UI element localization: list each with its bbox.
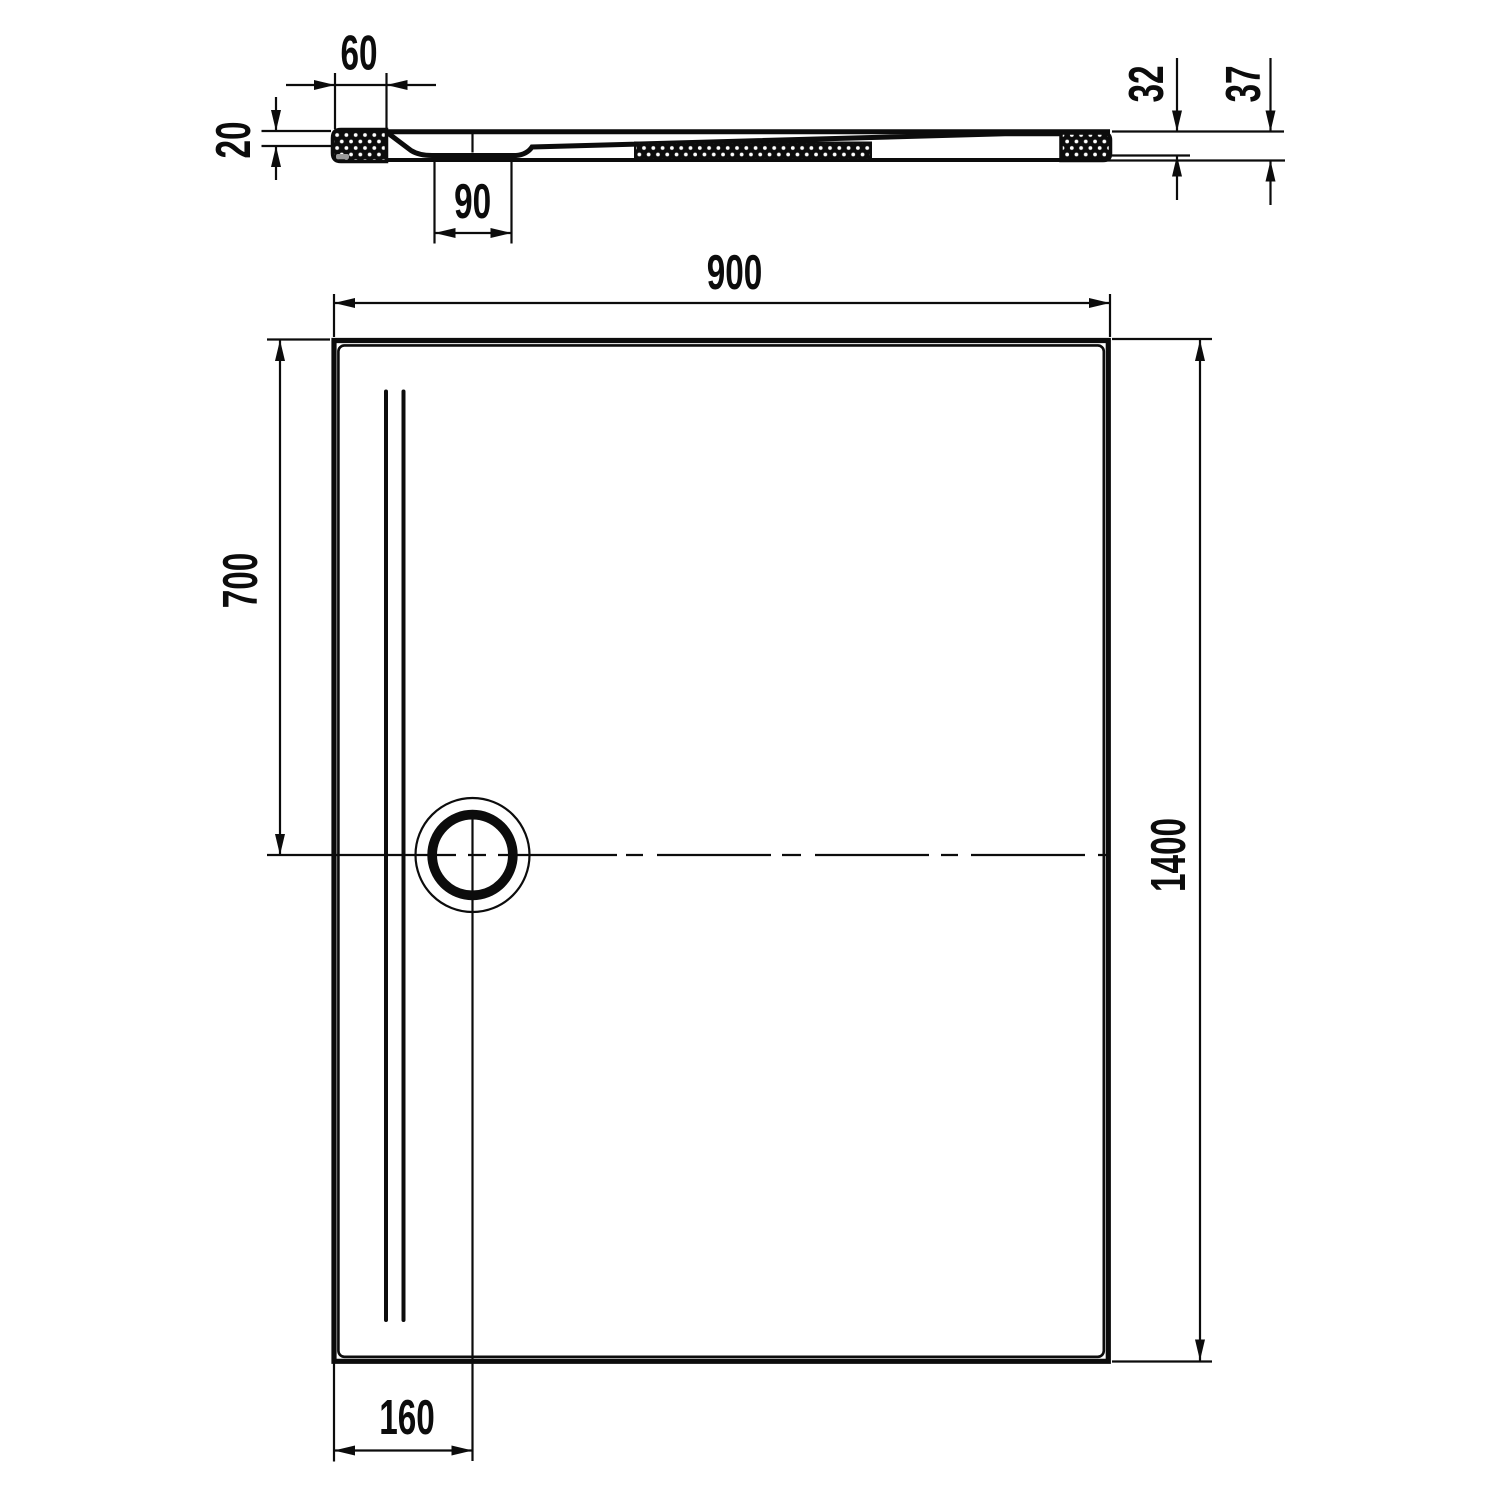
- svg-text:60: 60: [340, 25, 377, 80]
- svg-text:20: 20: [206, 121, 261, 158]
- svg-text:90: 90: [454, 174, 491, 229]
- svg-text:1400: 1400: [1141, 818, 1196, 892]
- svg-text:37: 37: [1216, 65, 1271, 102]
- svg-text:900: 900: [707, 245, 763, 300]
- svg-text:32: 32: [1119, 65, 1174, 102]
- svg-text:700: 700: [213, 553, 268, 609]
- svg-text:160: 160: [379, 1390, 435, 1445]
